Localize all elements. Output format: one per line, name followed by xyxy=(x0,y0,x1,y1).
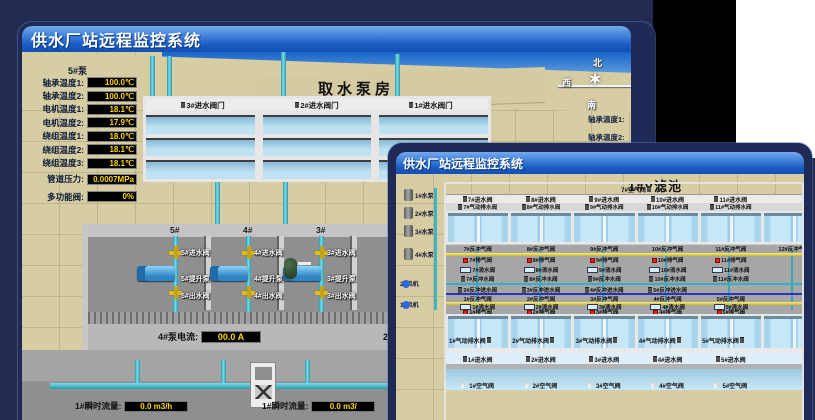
center-walkway: 7#反冲气阀8#反冲气阀9#反冲气阀10#反冲气阀11#反冲气阀12#反冲气阀 … xyxy=(446,244,804,314)
valve-label: 10#反冲水阀 xyxy=(654,275,685,283)
valve-icon xyxy=(181,103,185,108)
valve-item[interactable]: 2#空气阀 xyxy=(509,381,572,390)
window-filter-pool: 供水厂站远程监控系统 1#V滤池 1#水泵 2#水泵 3#水泵 4#水泵 xyxy=(388,143,812,420)
valve-icon xyxy=(585,205,589,210)
valve-label: 11#反冲气阀 xyxy=(715,245,746,253)
inlet-gate[interactable]: 1#进水阀门 xyxy=(409,100,452,111)
valve-item[interactable]: 11#气动排水阀 xyxy=(699,203,762,211)
current-readout: 4#泵电流: 00.0 A xyxy=(158,330,261,343)
sensor-label: 轴承温度1: xyxy=(588,114,631,125)
valve-icon xyxy=(463,357,467,362)
sensor-label: 绕组温度3: xyxy=(26,157,84,169)
valve-item[interactable]: 2#反冲气阀 xyxy=(509,295,572,303)
valve-item[interactable]: 8#排气阀 xyxy=(509,256,572,264)
clean-water-valve-icon xyxy=(587,267,598,273)
sensor-row: 轴承温度1: 100.0℃ xyxy=(26,76,176,89)
valve-item[interactable]: 7#反冲气阀 xyxy=(446,245,509,253)
valve-item[interactable]: 3#反冲进水阀 xyxy=(509,286,572,294)
valve-label: 9#反冲气阀 xyxy=(590,245,618,253)
desktop: 供水厂站远程监控系统 取水泵房 ✶ 北 西 南 轴承温度1:轴承温度2: 5#泵… xyxy=(0,0,815,420)
compass-star-icon: ✶ xyxy=(588,70,602,90)
valve-label: 10#清水阀 xyxy=(661,266,687,274)
pump-icon xyxy=(404,207,413,219)
valve-item[interactable]: 3#反冲气阀 xyxy=(573,295,636,303)
outlet-valve-label: 3#出水阀 xyxy=(327,291,356,301)
pump-label: 5#提升泵 xyxy=(181,274,210,284)
valve-item[interactable]: 10#排气阀 xyxy=(636,256,699,264)
valve-icon xyxy=(647,187,651,192)
valve-icon xyxy=(522,288,526,293)
bottom-air-strip: 1#空气阀2#空气阀3#空气阀4#空气阀5#空气阀 xyxy=(446,364,804,390)
valve-label: 5#反冲气阀 xyxy=(717,295,745,303)
valve-item[interactable]: 10#清水阀 xyxy=(636,266,699,274)
valve-label: 4#空气阀 xyxy=(659,381,684,390)
valve-item[interactable]: 5#空气阀 xyxy=(699,381,762,390)
valve-item[interactable]: 9#清水阀 xyxy=(573,266,636,274)
valve-label: 4#进水阀 xyxy=(658,355,683,364)
valve-icon xyxy=(653,357,657,362)
valve-item[interactable]: 2#反冲进水阀 xyxy=(446,286,509,294)
inlet-gate-label: 3#进水阀门 xyxy=(186,100,224,111)
sensor-label: 管道压力: xyxy=(26,173,84,185)
water-cell xyxy=(263,160,372,179)
filter-cell xyxy=(701,213,761,242)
valve-item[interactable]: 1#反冲气阀 xyxy=(446,295,509,303)
exhaust-valve-icon xyxy=(463,258,468,263)
valve-label: 8#清水阀 xyxy=(536,266,559,274)
valve-item[interactable]: 4#空气阀 xyxy=(636,381,699,390)
intake-window-title: 供水厂站远程监控系统 xyxy=(31,27,201,51)
valve-icon xyxy=(487,338,491,343)
pump-item[interactable]: 3#水泵 xyxy=(404,223,448,239)
sensor-label: 轴承温度2: xyxy=(26,90,84,102)
water-cell xyxy=(263,138,372,157)
valve-label: 2#反冲进水阀 xyxy=(463,286,497,294)
valve-label: 10#排气阀 xyxy=(658,256,684,264)
compass-north-label: 北 xyxy=(593,56,602,69)
backwash-water-pipe-icon xyxy=(446,283,804,285)
pipe-icon xyxy=(298,262,311,265)
bay-number: 4# xyxy=(243,225,252,235)
valve-icon xyxy=(526,197,530,202)
bottom-inlet-ledge: 1#进水阀2#进水阀3#进水阀4#进水阀5#进水阀 xyxy=(446,350,804,364)
sensor-value[interactable]: 0% xyxy=(87,191,137,202)
valve-label: 5#气动排水阀 xyxy=(702,336,739,345)
valve-item[interactable]: 3#进水阀 xyxy=(573,355,636,364)
valve-label: 3#气动排水阀 xyxy=(576,336,613,345)
exhaust-valve-icon xyxy=(652,258,657,263)
outlet-valve-label: 4#出水阀 xyxy=(254,291,283,301)
valve-label: 5#反冲进水阀 xyxy=(653,286,687,294)
top-backwash-water-row: 7#反冲水阀8#反冲水阀9#反冲水阀10#反冲水阀11#反冲水阀 xyxy=(446,275,804,283)
exhaust-valve-icon xyxy=(527,258,532,263)
valve-label: 3#进水阀 xyxy=(594,355,619,364)
valve-icon xyxy=(526,357,530,362)
valve-icon xyxy=(522,205,526,210)
valve-icon xyxy=(458,288,462,293)
filter-titlebar[interactable]: 供水厂站远程监控系统 xyxy=(396,152,804,174)
clean-water-valve-icon xyxy=(712,267,723,273)
valve-label: 9#排气阀 xyxy=(596,256,619,264)
pump-item[interactable]: 2#水泵 xyxy=(404,205,448,221)
blower-item[interactable]: 1#风机 xyxy=(400,300,446,309)
valve-label: 8#反冲水阀 xyxy=(529,275,557,283)
valve-label: 11#反冲水阀 xyxy=(718,275,749,283)
bay-number: 5# xyxy=(170,225,179,235)
valve-item[interactable]: 11#排气阀 xyxy=(699,256,762,264)
top-drain-ledge: 7#气动排水阀8#气动排水阀9#气动排水阀10#气动排水阀11#气动排水阀 xyxy=(446,203,804,211)
sensor-value[interactable]: 18.1℃ xyxy=(87,104,137,115)
top-inlet-ledge: 7#进水阀8#进水阀9#进水阀10#进水阀11#进水阀 xyxy=(446,194,804,203)
valve-icon xyxy=(295,103,299,108)
sensor-label: 轴承温度1: xyxy=(26,77,84,89)
valve-label: 10#反冲气阀 xyxy=(652,245,683,253)
valve-icon xyxy=(740,338,744,343)
valve-item[interactable]: 5#气动排水阀 xyxy=(699,336,762,345)
valve-label: 3#空气阀 xyxy=(596,381,621,390)
valve-icon xyxy=(713,277,717,282)
valve-icon xyxy=(613,338,617,343)
valve-icon xyxy=(589,357,593,362)
valve-item[interactable]: 7#清水阀 xyxy=(446,266,509,274)
pump-label: 2#水泵 xyxy=(415,209,434,218)
valve-icon xyxy=(585,288,589,293)
valve-item[interactable]: 10#反冲气阀 xyxy=(636,245,699,253)
valve-label: 5#进水阀 xyxy=(721,355,746,364)
valve-item[interactable]: 11#反冲气阀 xyxy=(699,245,762,253)
pipe-icon xyxy=(281,52,286,100)
compass-west-label: 西 xyxy=(562,76,571,89)
valve-item[interactable]: 8#反冲气阀 xyxy=(509,245,572,253)
valve-label: 2#反冲气阀 xyxy=(527,295,555,303)
inlet-valve-label: 3#进水阀 xyxy=(327,248,356,258)
sensor-label: 电机温度2: xyxy=(26,117,84,129)
bay-number: 3# xyxy=(316,225,325,235)
sensor-value[interactable]: 18.1℃ xyxy=(87,158,137,169)
sensor-label: 绕组温度2: xyxy=(26,144,84,156)
inlet-gate-label: 2#进水阀门 xyxy=(300,100,338,111)
pump-icon[interactable] xyxy=(137,266,175,281)
valve-label: 2#气动排水阀 xyxy=(512,336,549,345)
filter-window-title: 供水厂站远程监控系统 xyxy=(403,155,523,172)
valve-label: 11#清水阀 xyxy=(724,266,749,274)
tank-icon xyxy=(284,258,297,279)
clean-water-valve-icon xyxy=(524,267,535,273)
flow-readout: 1#瞬时流量: 0.0 m3/ xyxy=(262,400,375,412)
valve-label: 4#反冲气阀 xyxy=(653,295,681,303)
valve-item[interactable]: 5#进水阀 xyxy=(699,355,762,364)
exhaust-valve-icon xyxy=(590,258,595,263)
inlet-gate[interactable]: 2#进水阀门 xyxy=(295,100,338,111)
pipe-icon xyxy=(215,182,220,224)
valve-label: 2#空气阀 xyxy=(533,381,558,390)
valve-label: 4#反冲进水阀 xyxy=(590,286,624,294)
pump-icon[interactable] xyxy=(210,266,248,281)
filter-cell xyxy=(764,213,804,242)
inlet-gate-row: 3#进水阀门 2#进水阀门 1#进水阀门 xyxy=(146,99,488,111)
valve-label: 10#气动排水阀 xyxy=(652,203,689,211)
background-black-area xyxy=(653,0,737,145)
flow-value[interactable]: 0.0 m3/ xyxy=(311,401,375,412)
valve-item[interactable]: 3#气动排水阀 xyxy=(573,336,636,345)
filter-cell xyxy=(574,213,634,242)
water-cell xyxy=(263,115,372,134)
valve-label: 9#反冲水阀 xyxy=(593,275,621,283)
sensor-row: 多功能阀: 0% xyxy=(26,190,176,203)
current-label: 4#泵电流: xyxy=(158,330,198,343)
valve-item[interactable]: 8#清水阀 xyxy=(509,266,572,274)
water-cell xyxy=(146,115,255,134)
blowers: 2#风机 1#风机 xyxy=(400,278,446,321)
valve-label: 7#反冲水阀 xyxy=(466,275,494,283)
valve-item[interactable]: 4#反冲气阀 xyxy=(636,295,699,303)
valve-item[interactable]: 7#气动排水阀 xyxy=(446,203,509,211)
pipe-icon xyxy=(221,360,226,384)
valve-label: 7#空气阀 xyxy=(621,185,646,194)
inlet-valve-label: 5#进水阀 xyxy=(181,248,210,258)
water-cell xyxy=(146,138,255,157)
valve-icon xyxy=(458,205,462,210)
sensor-value[interactable]: 100.0℃ xyxy=(87,77,137,88)
valve-item[interactable]: 12#反冲气阀 xyxy=(762,245,804,253)
air-elbow-icon xyxy=(588,383,595,388)
valve-item[interactable]: 10#反冲水阀 xyxy=(636,275,699,283)
valve-item[interactable]: 1#空气阀 xyxy=(446,381,509,390)
valve-label: 5#空气阀 xyxy=(722,381,747,390)
valve-icon xyxy=(647,205,651,210)
pump-bay: 5# 5#进水阀 5#提升泵 5#出水阀 xyxy=(138,224,211,324)
background-white-area xyxy=(736,0,815,158)
valve-item[interactable]: 9#反冲气阀 xyxy=(573,245,636,253)
filter-cell xyxy=(511,213,571,242)
pump-icon xyxy=(404,189,413,201)
sensor-value[interactable]: 0.0007MPa xyxy=(87,174,137,185)
pump-label: 4#水泵 xyxy=(415,250,434,259)
foreground-ground xyxy=(446,390,804,420)
air-elbow-icon xyxy=(461,383,468,388)
flow-label: 1#瞬时流量: xyxy=(75,400,121,412)
valve-item[interactable]: 11#清水阀 xyxy=(699,266,762,274)
valve-item[interactable]: 1#进水阀 xyxy=(446,355,509,364)
valve-item[interactable]: 1#气动排水阀 xyxy=(446,336,509,345)
backwash-pumps: 1#水泵 2#水泵 3#水泵 4#水泵 xyxy=(404,187,448,264)
top-clean-water-row: 7#清水阀8#清水阀9#清水阀10#清水阀11#清水阀 xyxy=(446,266,804,274)
filter-cell xyxy=(448,213,508,242)
valve-label: 8#气动排水阀 xyxy=(527,203,561,211)
pump-label: 4#提升泵 xyxy=(254,274,283,284)
valve-label: 7#排气阀 xyxy=(469,256,492,264)
valve-item[interactable]: 2#进水阀 xyxy=(509,355,572,364)
top-air-valve-row: 7#空气阀8#空气阀9#空气阀10#空气阀11#空气阀12#空气阀 xyxy=(446,185,804,194)
valve-item[interactable]: 7#反冲水阀 xyxy=(446,275,509,283)
sensor-value[interactable]: 18.0℃ xyxy=(87,131,137,142)
inlet-gate[interactable]: 3#进水阀门 xyxy=(181,100,224,111)
flow-label: 1#瞬时流量: xyxy=(262,400,308,412)
valve-icon xyxy=(588,277,592,282)
water-cell xyxy=(146,160,255,179)
valve-label: 8#排气阀 xyxy=(533,256,556,264)
pump-label: 3#提升泵 xyxy=(327,274,356,284)
pump-icon xyxy=(404,225,413,237)
valve-icon xyxy=(463,197,467,202)
valve-icon xyxy=(714,197,718,202)
valve-label: 7#反冲气阀 xyxy=(464,245,492,253)
pipe-icon xyxy=(135,360,140,384)
sensor-label: 电机温度1: xyxy=(26,103,84,115)
valve-icon xyxy=(409,103,413,108)
center-backwash-inlet-row: 2#反冲进水阀3#反冲进水阀4#反冲进水阀5#反冲进水阀 xyxy=(446,286,804,294)
air-elbow-icon xyxy=(525,383,532,388)
sensor-label: 轴承温度2: xyxy=(588,132,631,143)
pump-bay: 4# 4#进水阀 4#提升泵 4#出水阀 xyxy=(211,224,284,324)
valve-item[interactable]: 3#空气阀 xyxy=(573,381,636,390)
inlet-gate-label: 1#进水阀门 xyxy=(414,100,452,111)
air-elbow-icon xyxy=(651,383,658,388)
valve-icon xyxy=(649,277,653,282)
pipe-icon xyxy=(395,54,400,100)
valve-item[interactable]: 7#空气阀 xyxy=(446,185,804,194)
valve-item[interactable]: 9#反冲水阀 xyxy=(573,275,636,283)
valve-label: 9#气动排水阀 xyxy=(590,203,624,211)
filter-cell xyxy=(638,213,698,242)
sensor-label: 多功能阀: xyxy=(26,191,84,203)
valve-item[interactable]: 10#气动排水阀 xyxy=(636,203,699,211)
current-value[interactable]: 00.0 A xyxy=(201,331,261,343)
valve-item[interactable]: 8#反冲水阀 xyxy=(509,275,572,283)
valve-label: 1#反冲气阀 xyxy=(464,295,492,303)
flow-value[interactable]: 0.0 m3/h xyxy=(124,401,188,412)
pump-icon xyxy=(404,248,413,260)
pump-label: 1#水泵 xyxy=(415,191,434,200)
pump-bays: 5# 5#进水阀 5#提升泵 5#出水阀 4# xyxy=(138,224,357,324)
bottom-drain-row: 1#气动排水阀2#气动排水阀3#气动排水阀4#气动排水阀5#气动排水阀 xyxy=(446,336,804,345)
valve-label: 8#反冲气阀 xyxy=(527,245,555,253)
valve-icon xyxy=(677,338,681,343)
valve-icon xyxy=(648,288,652,293)
exhaust-valve-icon xyxy=(715,258,720,263)
valve-icon xyxy=(589,197,593,202)
blower-item[interactable]: 2#风机 xyxy=(400,279,446,288)
clean-water-valve-icon xyxy=(460,267,471,273)
valve-label: 3#反冲气阀 xyxy=(590,295,618,303)
outlet-valve-label: 5#出水阀 xyxy=(181,291,210,301)
valve-label: 4#气动排水阀 xyxy=(639,336,676,345)
sensor-label: 绕组温度1: xyxy=(26,130,84,142)
pump-item[interactable]: 1#水泵 xyxy=(404,187,448,203)
bottom-backwash-air-row: 1#反冲气阀2#反冲气阀3#反冲气阀4#反冲气阀5#反冲气阀 xyxy=(446,295,804,303)
inlet-valve-label: 4#进水阀 xyxy=(254,248,283,258)
sensor-value[interactable]: 100.0℃ xyxy=(87,91,137,102)
water-cell xyxy=(379,115,488,134)
intake-titlebar[interactable]: 供水厂站远程监控系统 xyxy=(22,26,631,52)
valve-icon xyxy=(461,277,465,282)
valve-icon xyxy=(651,197,655,202)
sensor-value[interactable]: 17.9℃ xyxy=(87,117,137,128)
valve-label: 3#反冲进水阀 xyxy=(527,286,561,294)
pipe-icon xyxy=(305,360,310,384)
valve-icon xyxy=(710,205,714,210)
clean-water-valve-icon xyxy=(649,267,660,273)
pipe-icon xyxy=(283,182,288,224)
valve-item[interactable]: 5#反冲进水阀 xyxy=(636,286,699,294)
top-backwash-air-row: 7#反冲气阀8#反冲气阀9#反冲气阀10#反冲气阀11#反冲气阀12#反冲气阀 xyxy=(446,245,804,253)
valve-label: 1#空气阀 xyxy=(469,381,494,390)
valve-label: 1#气动排水阀 xyxy=(449,336,486,345)
valve-label: 2#进水阀 xyxy=(531,355,556,364)
top-filter-pools xyxy=(446,211,804,244)
valve-icon xyxy=(716,357,720,362)
valve-item[interactable]: 5#反冲气阀 xyxy=(699,295,762,303)
valve-item[interactable]: 11#反冲水阀 xyxy=(699,275,762,283)
pump-label: 3#水泵 xyxy=(415,227,434,236)
valve-label: 7#气动排水阀 xyxy=(463,203,497,211)
air-elbow-icon xyxy=(714,383,721,388)
valve-item[interactable]: 8#气动排水阀 xyxy=(509,203,572,211)
valve-item[interactable]: 4#反冲进水阀 xyxy=(573,286,636,294)
flow-readout: 1#瞬时流量: 0.0 m3/h xyxy=(75,400,188,412)
valve-label: 1#进水阀 xyxy=(468,355,493,364)
compass-south-label: 南 xyxy=(587,98,596,111)
sensor-value[interactable]: 18.1℃ xyxy=(87,144,137,155)
valve-item[interactable]: 9#气动排水阀 xyxy=(573,203,636,211)
top-exhaust-row: 7#排气阀8#排气阀9#排气阀10#排气阀11#排气阀 xyxy=(446,256,804,264)
valve-icon xyxy=(524,277,528,282)
valve-item[interactable]: 2#气动排水阀 xyxy=(509,336,572,345)
valve-label: 7#清水阀 xyxy=(472,266,495,274)
valve-label: 12#反冲气阀 xyxy=(779,245,804,253)
valve-label: 11#排气阀 xyxy=(721,256,746,264)
pump-item[interactable]: 4#水泵 xyxy=(404,246,448,262)
valve-label: 9#清水阀 xyxy=(599,266,622,274)
valve-item[interactable]: 7#排气阀 xyxy=(446,256,509,264)
valve-icon xyxy=(550,338,554,343)
valve-item[interactable]: 4#气动排水阀 xyxy=(636,336,699,345)
valve-label: 11#气动排水阀 xyxy=(715,203,751,211)
filter-structure: 7#空气阀8#空气阀9#空气阀10#空气阀11#空气阀12#空气阀 7#进水阀8… xyxy=(444,182,804,420)
valve-item[interactable]: 4#进水阀 xyxy=(636,355,699,364)
filter-scene: 1#V滤池 1#水泵 2#水泵 3#水泵 4#水泵 2#风机 xyxy=(396,174,804,420)
valve-item[interactable]: 9#排气阀 xyxy=(573,256,636,264)
